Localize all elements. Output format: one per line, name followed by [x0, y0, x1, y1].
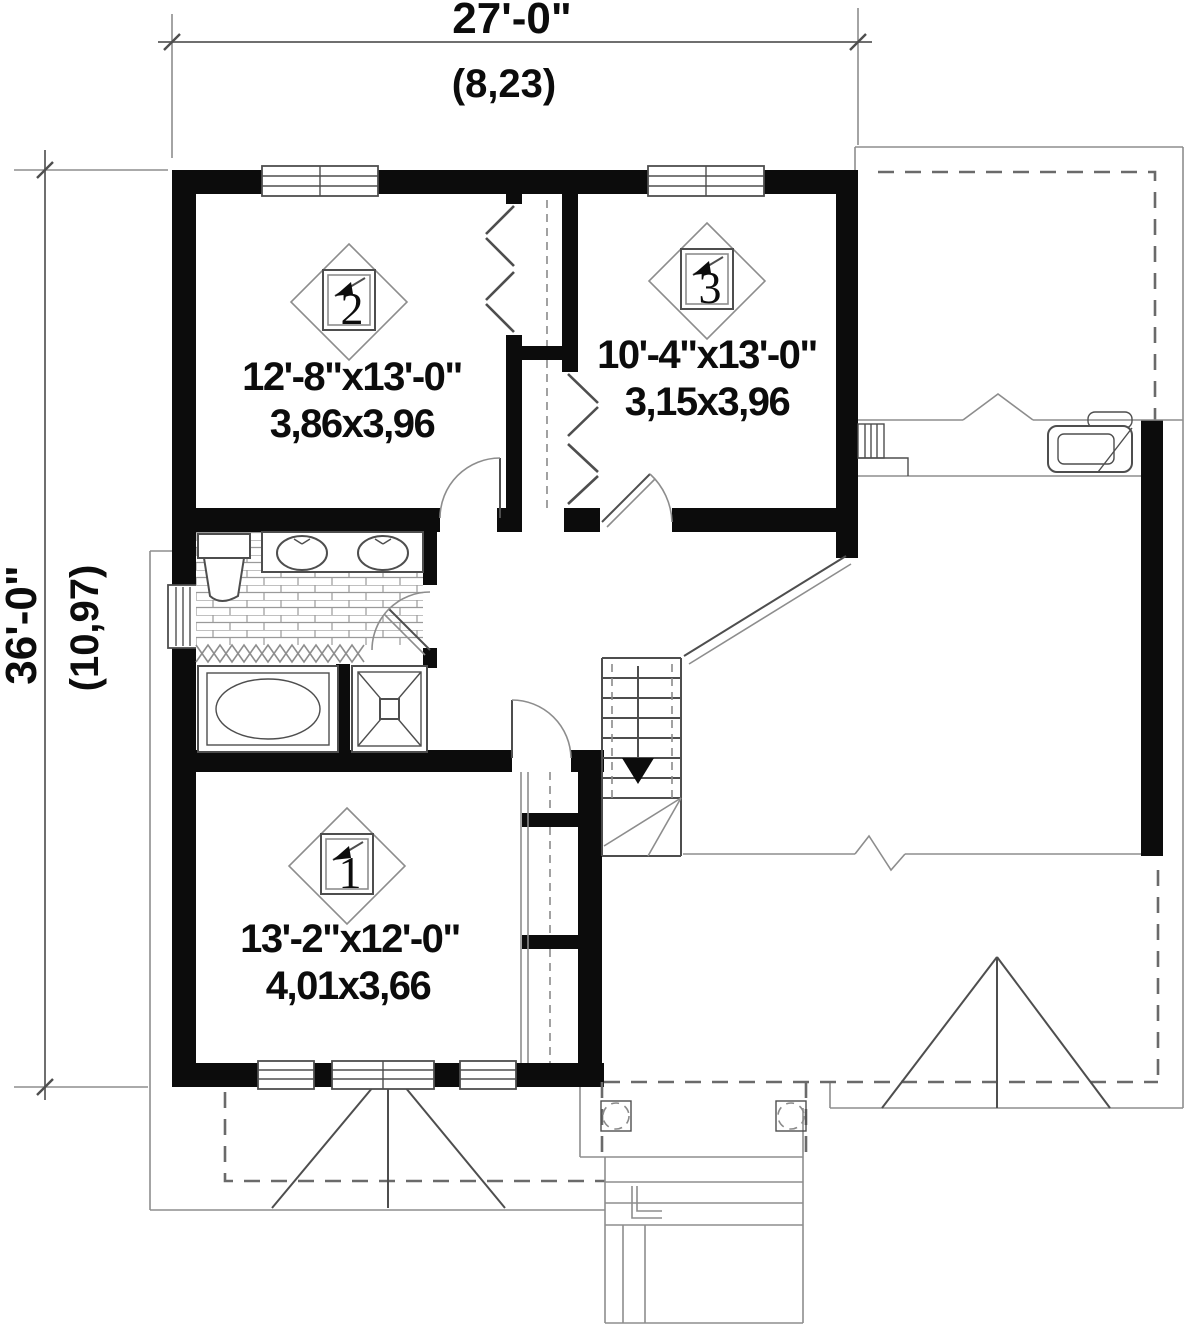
wall-east-bedroom3 [836, 170, 858, 558]
break-line-icon [963, 394, 1033, 420]
room-size-imperial: 13'-2"x12'-0" [240, 917, 460, 961]
hip-right [997, 957, 1110, 1108]
door-bedroom-3 [602, 474, 672, 527]
door-bedroom-2 [440, 458, 500, 518]
window-south-2 [332, 1061, 434, 1089]
dim-width-metric: (8,23) [452, 62, 557, 106]
winder-tread [604, 798, 681, 846]
dimension-top: 27'-0" (8,23) [158, 0, 872, 158]
angled-wall [689, 564, 851, 664]
room-size-imperial: 10'-4"x13'-0" [597, 333, 817, 377]
break-line-icon [855, 836, 905, 870]
porch-post-icon [776, 1101, 806, 1131]
window-bathroom [168, 585, 198, 648]
hip-left [882, 957, 997, 1108]
roof-dashed-top-right [878, 172, 1155, 420]
room-number: 2 [341, 283, 364, 334]
mini-steps [858, 424, 908, 476]
window-north-1 [262, 166, 378, 196]
bay-roof-hip-left [272, 1087, 373, 1208]
dim-depth-metric: (10,97) [63, 565, 107, 692]
winder-tread [648, 798, 681, 856]
bedroom-3-label: 3 10'-4"x13'-0" 3,15x3,96 [597, 223, 817, 424]
bifold-door-icon [486, 206, 514, 266]
room-size-imperial: 12'-8"x13'-0" [242, 355, 462, 399]
room-number: 3 [699, 262, 722, 313]
stairs-down-arrow [622, 666, 654, 784]
dim-width-imperial: 27'-0" [452, 0, 571, 43]
angled-wall [684, 556, 846, 656]
floor-plan-drawing: 27'-0" (8,23) 36'-0" (10,97) [0, 0, 1200, 1331]
room-size-metric: 4,01x3,66 [266, 964, 431, 1008]
porch-steps [605, 1157, 803, 1323]
porch-post-icon [601, 1101, 631, 1131]
dimension-left: 36'-0" (10,97) [0, 150, 168, 1100]
kitchen-sink-icon [1048, 412, 1132, 472]
bedroom-2-label: 2 12'-8"x13'-0" 3,86x3,96 [242, 244, 462, 446]
window-north-2 [648, 166, 764, 196]
vanity-sinks [262, 532, 423, 572]
porch [580, 1082, 806, 1157]
bifold-door-icon [568, 444, 598, 504]
dim-depth-imperial: 36'-0" [0, 565, 46, 684]
staircase [602, 556, 1141, 870]
bifold-door-icon [486, 272, 514, 332]
room-number: 1 [339, 847, 362, 898]
room-size-metric: 3,86x3,96 [270, 402, 435, 446]
bifold-door-icon [568, 374, 598, 436]
wall-east-lower [1141, 420, 1163, 856]
kitchen-counter-below [858, 394, 1183, 476]
shower [352, 666, 427, 752]
room-size-metric: 3,15x3,96 [625, 380, 790, 424]
railing-detail [632, 1186, 662, 1218]
door-bedroom-1 [512, 700, 571, 758]
bath-mat [196, 645, 364, 662]
bay-roof-hip-right [405, 1087, 505, 1208]
bedroom-1-label: 1 13'-2"x12'-0" 4,01x3,66 [240, 808, 460, 1008]
floor-plan-page: 27'-0" (8,23) 36'-0" (10,97) [0, 0, 1200, 1331]
bathroom [196, 532, 427, 752]
window-south-1 [258, 1061, 314, 1089]
bathtub [198, 666, 338, 752]
window-south-3 [460, 1061, 516, 1089]
roof-dashed-bottom-left [225, 1092, 605, 1181]
